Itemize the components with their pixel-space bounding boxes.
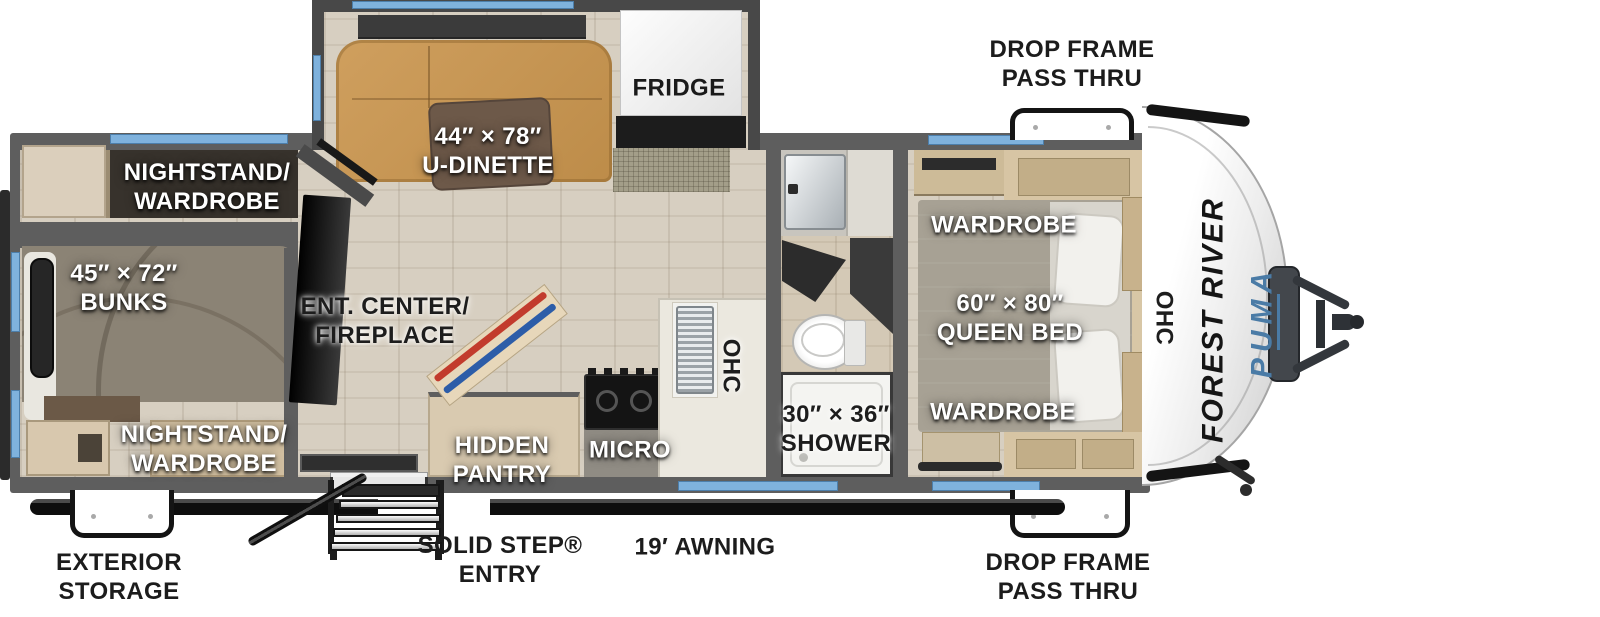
label-ohc-kitchen: OHC [717,339,746,394]
passthru-door-top [1010,108,1134,140]
bath-counter-right [846,150,893,236]
bedroom-dresser-inset [922,158,996,170]
hitch-ball [1350,315,1364,329]
burner [630,390,652,412]
kitchen-bottom-window [678,481,838,491]
label-queen-bed: 60″ × 80″QUEEN BED [937,289,1083,347]
toilet-tank [844,320,866,366]
toilet-seat-ring [801,323,845,357]
label-nightstand-bottom: NIGHTSTAND/WARDROBE [121,420,288,478]
fridge-counter [616,116,746,148]
step-foot [330,551,337,560]
bed-foot-bench [922,432,1000,466]
screw-dot [1104,514,1109,519]
screw-dot [1033,125,1038,130]
screw-dot [148,514,153,519]
label-awning: 19′ AWNING [635,533,776,562]
bath-wall-right [893,150,908,477]
label-drop-frame-bottom: DROP FRAMEPASS THRU [986,548,1151,606]
bunk-cabinet-light [22,145,106,218]
bunkroom-top-window [110,134,288,144]
bunk-nightstand-inset [78,434,102,462]
wardrobe-cabinet-top [1004,150,1146,202]
storage-door-bottom-left [70,490,174,538]
rear-window-lower [11,390,20,458]
bedroom-dresser [914,150,1004,196]
bed-foot-rail [918,462,1002,471]
label-bunks: 45″ × 72″BUNKS [70,259,177,317]
label-fridge: FRIDGE [632,74,725,103]
bunk-wood-strip [44,396,140,422]
wardrobe-drawer [1082,439,1134,469]
label-wardrobe-bottom: WARDROBE [930,398,1076,427]
front-jack-wheel [1240,484,1252,496]
hitch-crossbar [1316,300,1325,348]
rear-window-upper [11,252,20,332]
brand-forest-river: FOREST RIVER [1199,197,1228,443]
wardrobe-drawer [1016,439,1076,469]
stove-knobs [588,368,660,375]
floorplan-canvas: DROP FRAMEPASS THRU EXTERIORSTORAGE SOLI… [0,0,1600,617]
screw-dot [91,514,96,519]
wardrobe-panel [1018,158,1130,196]
step-tread [339,500,440,509]
rear-bumper [0,190,10,480]
burner [596,390,618,412]
label-dinette: 44″ × 78″U-DINETTE [422,122,554,180]
label-hidden-pantry: HIDDENPANTRY [453,431,551,489]
label-exterior-storage: EXTERIORSTORAGE [56,548,182,606]
wardrobe-cabinet-bottom [1004,432,1146,477]
toilet [792,314,870,372]
label-drop-frame-top: DROP FRAMEPASS THRU [990,35,1155,93]
slideout-top-window [352,1,574,9]
puma-underline [1277,294,1280,350]
bath-wall-left [766,150,781,477]
kitchen-sink [676,306,714,394]
label-ohc-bedroom: OHC [1150,291,1179,346]
label-shower: 30″ × 36″SHOWER [781,400,891,458]
woven-mat [613,148,730,192]
bunk-divider-wall [20,222,298,248]
step-tread [336,514,441,523]
dinette-shelf [358,15,586,39]
awning-rail [490,499,1065,515]
label-solid-step-entry: SOLID STEP®ENTRY [418,531,583,589]
label-micro: MICRO [589,436,671,465]
brand-puma: PUMA [1248,266,1277,378]
stove [584,374,664,430]
label-wardrobe-top: WARDROBE [931,211,1077,240]
label-nightstand-top: NIGHTSTAND/WARDROBE [124,158,291,216]
bath-faucet [788,184,798,194]
bunk-ladder [30,258,54,378]
screw-dot [1106,125,1111,130]
slideout-side-window [313,55,321,121]
label-ent-center: ENT. CENTER/FIREPLACE [301,292,470,350]
